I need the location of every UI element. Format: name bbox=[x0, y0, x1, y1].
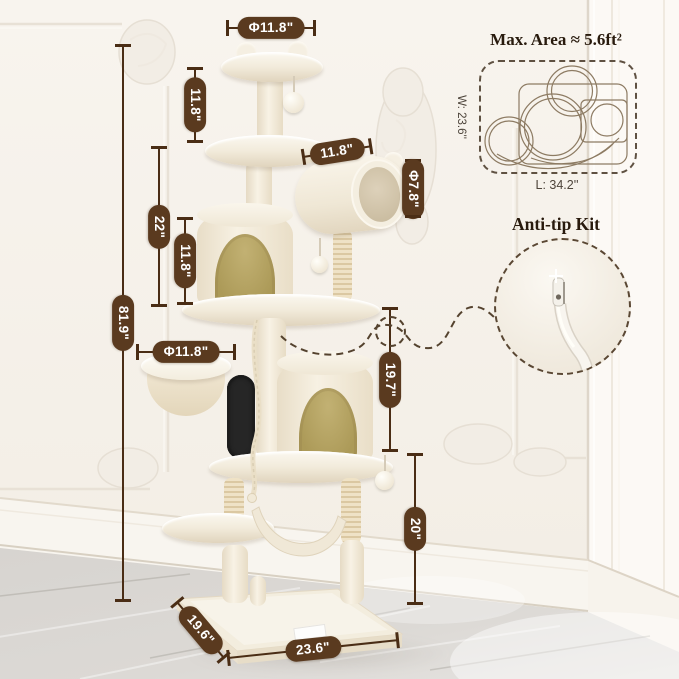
dim-label: Φ11.8" bbox=[153, 341, 220, 363]
anchor-point-marker bbox=[375, 316, 406, 347]
sisal-post bbox=[341, 478, 361, 544]
dim-label: 22" bbox=[148, 204, 170, 248]
footprint-width-label: W: 23.6'' bbox=[455, 95, 467, 139]
max-area-title: Max. Area ≈ 5.6ft² bbox=[455, 30, 657, 50]
dim-label: 11.8" bbox=[174, 233, 196, 288]
top-perch bbox=[221, 52, 323, 82]
anti-tip-strap bbox=[496, 240, 629, 373]
dim-top-section-height: 11.8" bbox=[194, 69, 196, 141]
dim-label: 11.8" bbox=[184, 77, 206, 132]
anti-tip-title: Anti-tip Kit bbox=[456, 214, 656, 235]
dim-label: 20" bbox=[404, 507, 426, 551]
footprint-drawing bbox=[483, 64, 633, 170]
hanging-ball bbox=[375, 471, 394, 490]
lower-condo-top bbox=[277, 351, 373, 375]
hanging-ball bbox=[283, 92, 304, 113]
grooming-brush bbox=[227, 375, 255, 459]
anti-tip-inset bbox=[494, 238, 631, 375]
product-dimension-infographic: Φ11.8" 11.8" 22" 11.8" 81.9" 11.8" Φ7.8"… bbox=[0, 0, 679, 679]
dim-basket-diameter: Φ11.8" bbox=[137, 351, 235, 353]
sisal-post bbox=[333, 230, 352, 302]
dim-lower-section-height: 20" bbox=[414, 455, 416, 603]
dim-tunnel-diameter: Φ7.8" bbox=[412, 161, 414, 216]
base-post bbox=[222, 545, 248, 603]
hanging-ball bbox=[311, 256, 328, 273]
footprint-box bbox=[479, 60, 637, 174]
upper-condo-top bbox=[197, 203, 293, 227]
dim-condo-section-height: 11.8" bbox=[184, 219, 186, 303]
dim-top-perch-diameter: Φ11.8" bbox=[227, 27, 315, 29]
dim-tunnel-length: 11.8" bbox=[303, 145, 371, 158]
ball-string bbox=[319, 238, 321, 258]
base-post bbox=[250, 576, 266, 606]
base-post bbox=[340, 540, 364, 604]
dim-total-height: 81.9" bbox=[122, 46, 124, 600]
dim-label: 19.7" bbox=[379, 351, 401, 407]
footprint-length-label: L: 34.2'' bbox=[536, 178, 579, 192]
side-platform bbox=[162, 513, 274, 543]
dim-label: Φ7.8" bbox=[402, 159, 424, 219]
dim-label: Φ11.8" bbox=[238, 17, 305, 39]
dim-upper-section-height: 22" bbox=[158, 148, 160, 305]
dim-label: 81.9" bbox=[112, 295, 134, 351]
